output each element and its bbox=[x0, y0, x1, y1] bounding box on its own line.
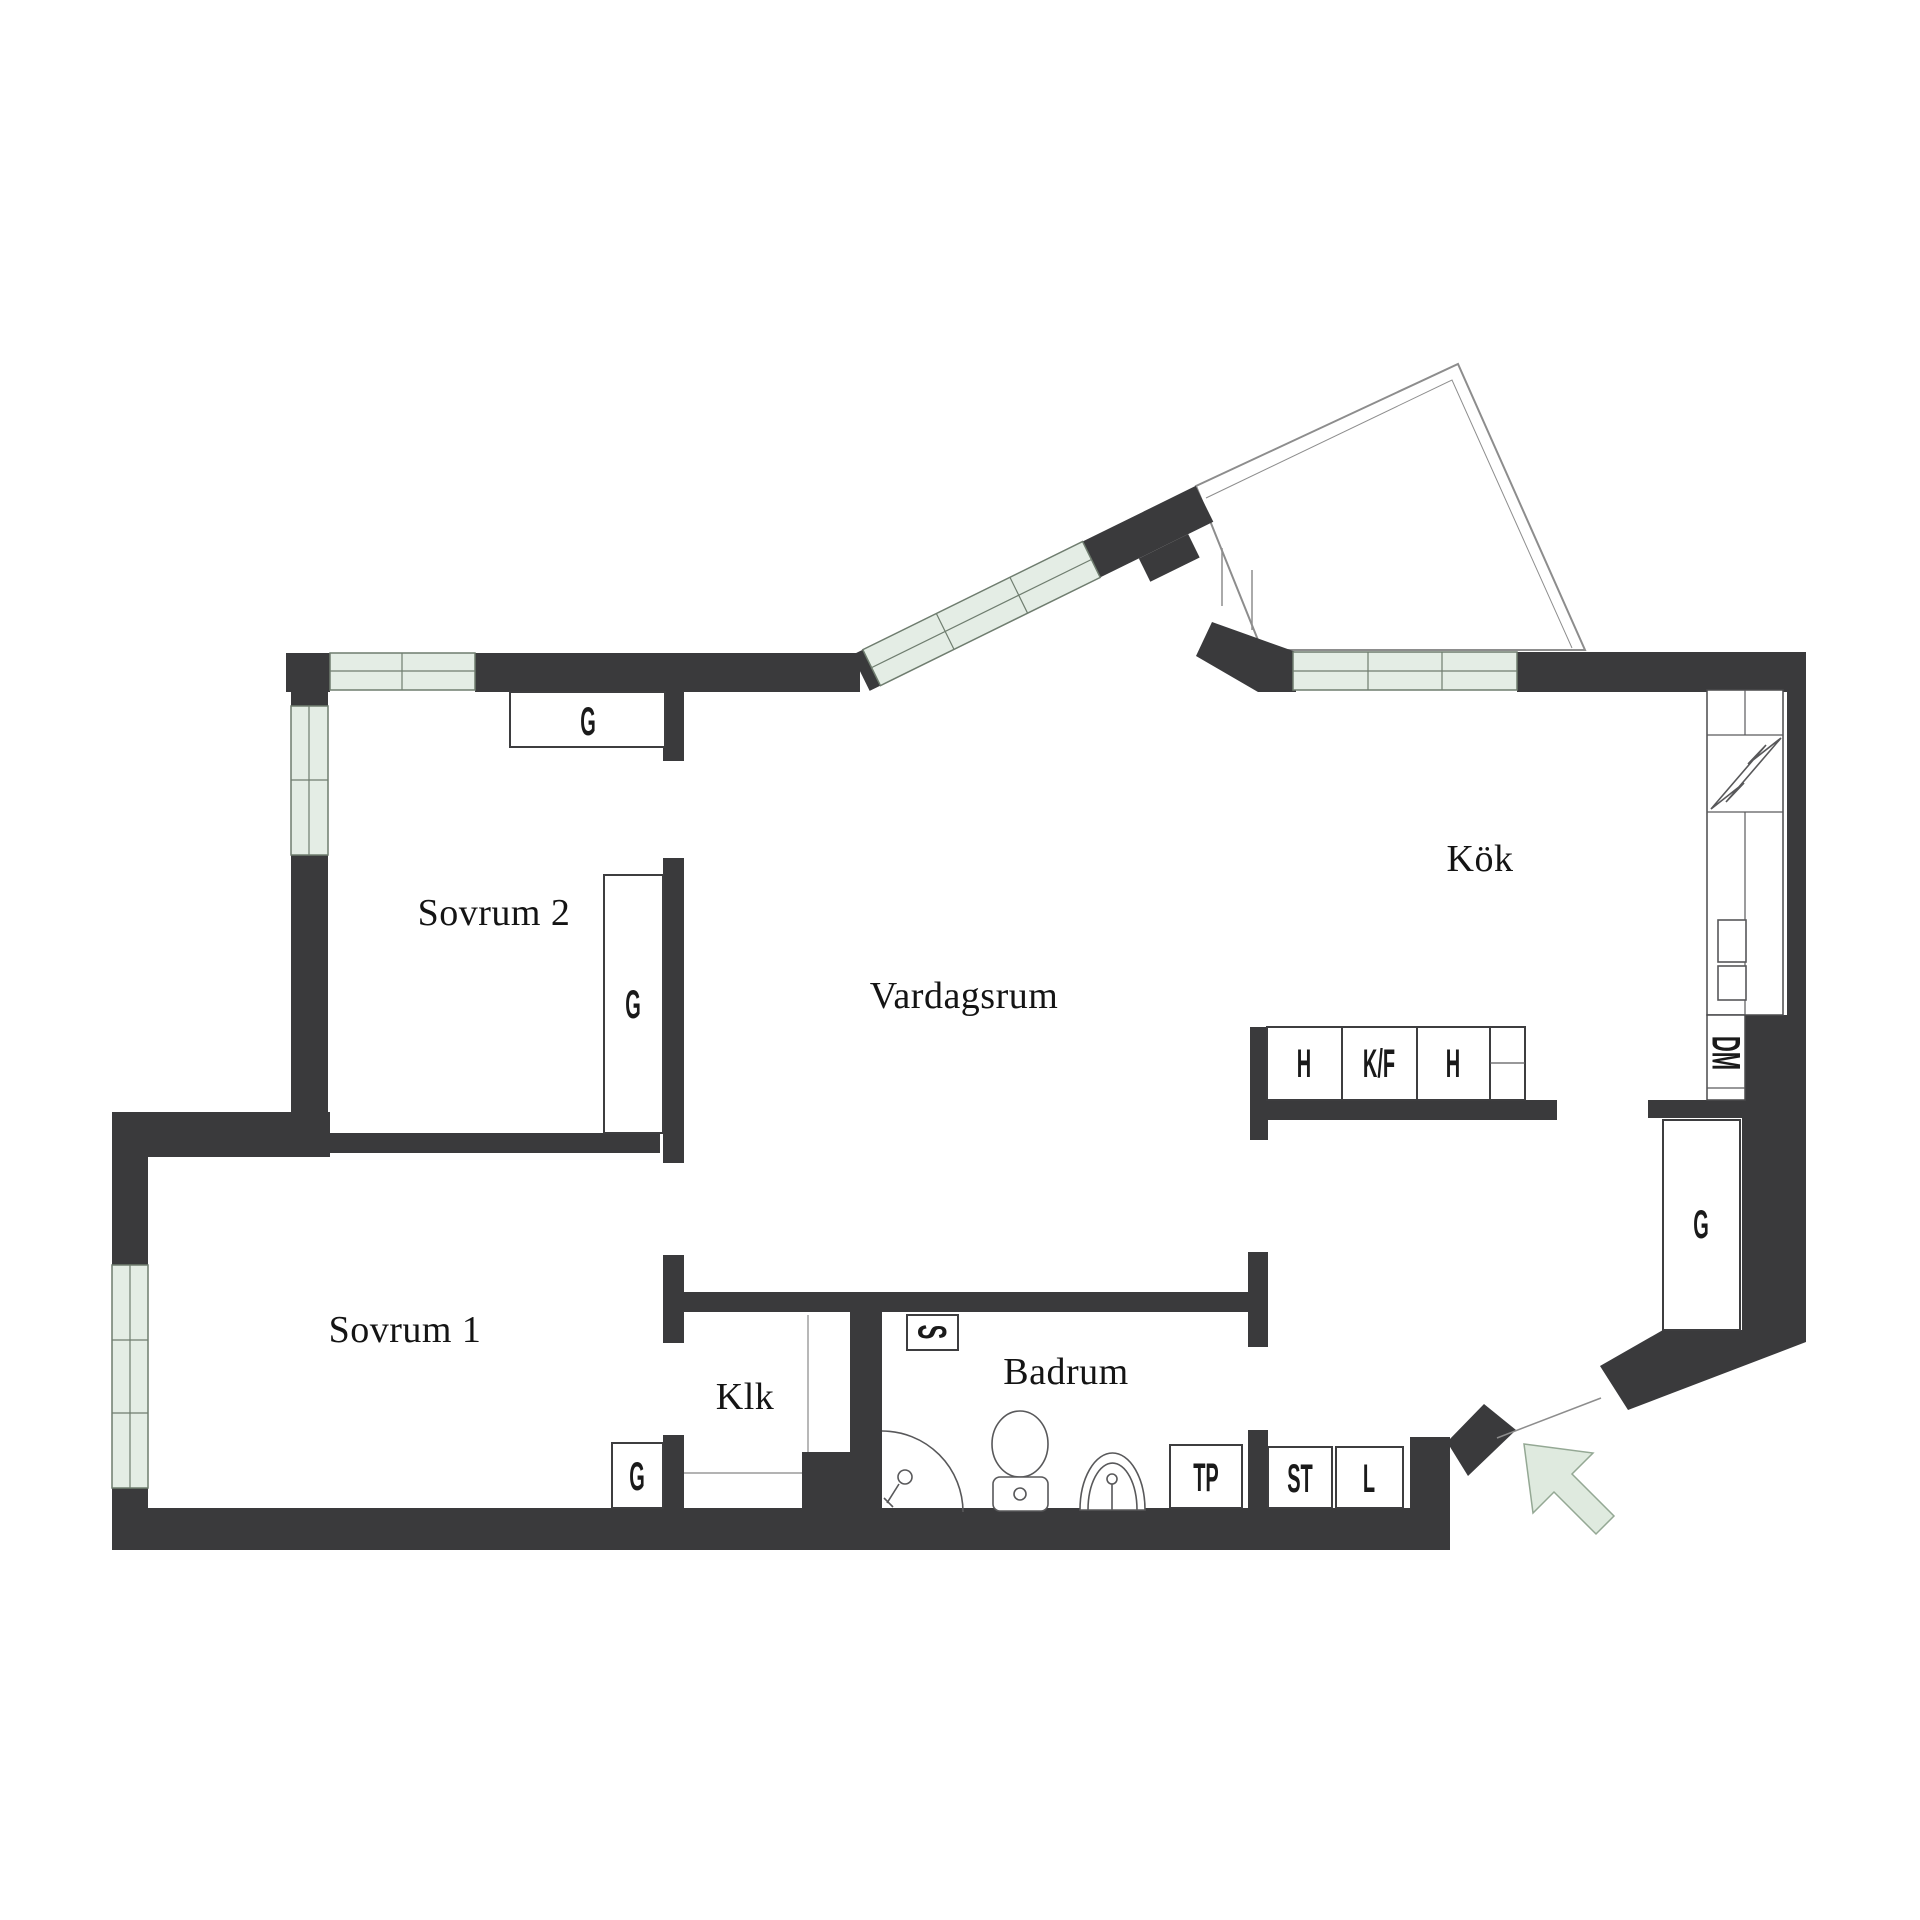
room-label-klk: Klk bbox=[716, 1376, 775, 1418]
wall-segment bbox=[112, 1488, 148, 1510]
wall-segment bbox=[1517, 652, 1806, 692]
wall-segment bbox=[1250, 1027, 1268, 1140]
shower-handle-line bbox=[887, 1484, 899, 1503]
cabinet-label: H bbox=[1446, 1040, 1460, 1086]
floor-plan: G G G G H K/F H S TP ST L bbox=[0, 0, 1920, 1920]
entrance-door-line bbox=[1497, 1398, 1601, 1438]
wall-segment bbox=[684, 1292, 1268, 1312]
wall-segment bbox=[802, 1452, 882, 1512]
sink-bowl bbox=[1718, 920, 1746, 962]
toilet-icon bbox=[992, 1411, 1048, 1477]
wall-segment bbox=[291, 653, 328, 706]
floor-plan-svg: G G G G H K/F H S TP ST L bbox=[0, 0, 1920, 1920]
sink-bowl bbox=[1718, 966, 1746, 1000]
wall-segment bbox=[1447, 1404, 1516, 1476]
st-label: ST bbox=[1287, 1455, 1313, 1501]
wall-segment bbox=[663, 858, 684, 1163]
wardrobe-label: G bbox=[629, 1453, 645, 1499]
balcony bbox=[1196, 364, 1585, 650]
cabinet-label: H bbox=[1297, 1040, 1311, 1086]
wall-segment bbox=[663, 692, 684, 761]
shower-icon bbox=[882, 1431, 963, 1512]
dishwasher-label: DM bbox=[1704, 1036, 1749, 1070]
room-label-vardagsrum: Vardagsrum bbox=[870, 975, 1059, 1017]
tp-label: TP bbox=[1193, 1454, 1219, 1500]
room-label-badrum: Badrum bbox=[1003, 1351, 1128, 1393]
wardrobe-label: G bbox=[580, 698, 596, 744]
sink-faucet-knob bbox=[1107, 1474, 1117, 1484]
shower-head-icon bbox=[898, 1470, 912, 1484]
window-divider-line bbox=[872, 559, 1092, 667]
wall-segment bbox=[112, 1112, 148, 1265]
wall-segment bbox=[850, 1312, 882, 1452]
room-label-sovrum-2: Sovrum 2 bbox=[418, 892, 571, 934]
wall-segment bbox=[1263, 1100, 1557, 1120]
wall-segment bbox=[663, 1255, 684, 1343]
wardrobe-label: G bbox=[1693, 1201, 1709, 1247]
cabinet-label: K/F bbox=[1363, 1040, 1395, 1086]
wall-segment bbox=[112, 1508, 1450, 1550]
wall-segment bbox=[663, 1435, 684, 1510]
bathroom-fixtures bbox=[882, 1411, 1145, 1512]
diagonal-wall bbox=[852, 486, 1225, 714]
wall-segment bbox=[1600, 1330, 1806, 1410]
wall-segment bbox=[1787, 690, 1806, 1332]
wall-segment bbox=[1248, 1430, 1268, 1510]
wall-segment bbox=[1248, 1252, 1268, 1347]
wall-segment bbox=[148, 1133, 660, 1153]
room-label-sovrum-1: Sovrum 1 bbox=[329, 1309, 482, 1351]
l-label: L bbox=[1363, 1455, 1375, 1501]
wall-segment bbox=[475, 653, 860, 692]
entrance-arrow-icon bbox=[1524, 1444, 1614, 1534]
wardrobe-label: G bbox=[625, 981, 641, 1027]
wall-segment bbox=[1410, 1437, 1450, 1510]
toilet-button bbox=[1014, 1488, 1026, 1500]
balcony-outline bbox=[1196, 364, 1585, 650]
room-label-kok: Kök bbox=[1447, 838, 1514, 880]
shaft-label: S bbox=[910, 1325, 955, 1340]
wall-segment bbox=[291, 855, 328, 1112]
